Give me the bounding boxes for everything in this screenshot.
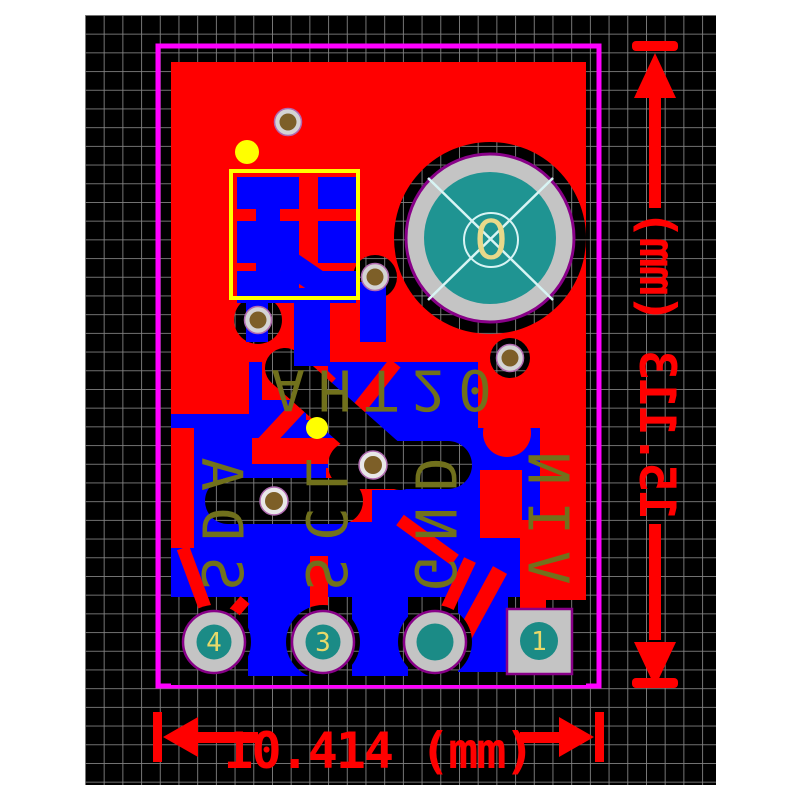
pad-1-number: 1	[531, 627, 547, 657]
via[interactable]	[260, 487, 288, 515]
pad-4[interactable]: 4	[177, 605, 251, 679]
dim-tick-right	[595, 712, 604, 762]
pad-2[interactable]	[398, 605, 472, 679]
board-height-dimension: 15.113 (mm)	[628, 211, 686, 520]
mount-pad-label: 0	[474, 209, 508, 272]
via[interactable]	[245, 307, 272, 334]
pcb-layout-drawing[interactable]: 0 AHT20 SDA SCL GND VIN	[0, 0, 800, 800]
pad-3[interactable]: 3	[286, 605, 360, 679]
via[interactable]	[275, 109, 302, 136]
dim-tick-top	[632, 41, 678, 51]
pcb-viewer-canvas[interactable]: 0 AHT20 SDA SCL GND VIN	[0, 0, 800, 800]
silk-pin-label-sda: SDA	[189, 441, 254, 590]
via[interactable]	[359, 451, 387, 479]
silk-pin-label-scl: SCL	[293, 441, 358, 590]
via[interactable]	[362, 264, 389, 291]
board-width-dimension: 10.414 (mm)	[223, 722, 532, 780]
dim-tick-left	[153, 712, 162, 762]
silk-component-label: AHT20	[271, 357, 505, 422]
pad-4-number: 4	[206, 628, 222, 658]
pad-1[interactable]: 1	[507, 609, 572, 674]
dim-tick-bottom	[632, 678, 678, 688]
silk-pin-label-vin: VIN	[515, 435, 580, 584]
pad-3-number: 3	[315, 628, 331, 658]
silk-pin-label-gnd: GND	[402, 441, 467, 590]
marker-dot	[235, 140, 259, 164]
center-mount-pad[interactable]: 0	[394, 142, 586, 334]
